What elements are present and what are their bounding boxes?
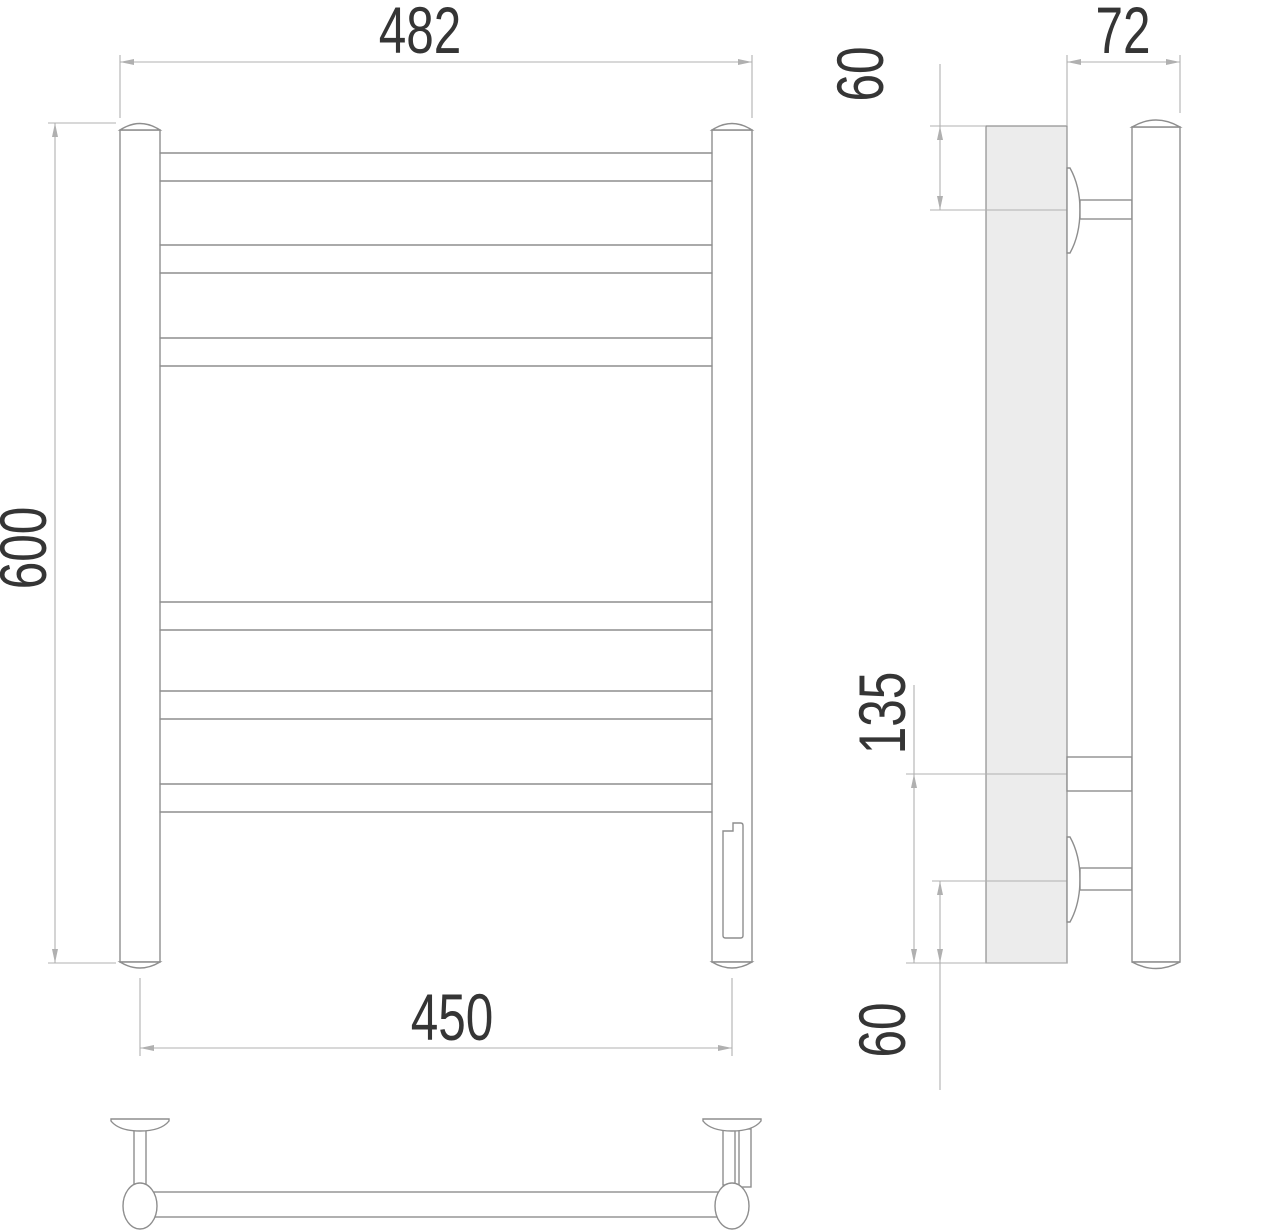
heating-element-block bbox=[1067, 757, 1132, 791]
dimension-overall-width: 482 bbox=[120, 0, 752, 118]
dim-72-arrow-right bbox=[1166, 59, 1180, 65]
dim-label-top-bracket-offset: 60 bbox=[824, 46, 898, 101]
top-bracket-wall-plate bbox=[1067, 168, 1080, 253]
bottom-view-rail-tube bbox=[150, 1192, 722, 1217]
front-right-post-top-cap bbox=[712, 124, 752, 131]
bottom-view-right-stem-2 bbox=[739, 1129, 751, 1187]
front-view: 482 600 450 bbox=[0, 0, 752, 1056]
front-left-post-top-cap bbox=[120, 124, 160, 131]
dimension-overall-depth: 72 bbox=[1067, 0, 1180, 126]
dim-600-arrow-bottom bbox=[52, 949, 58, 963]
bottom-view bbox=[111, 1119, 761, 1229]
dimension-lower-element-offset: 135 bbox=[846, 672, 920, 963]
bottom-view-right-post-section bbox=[715, 1183, 749, 1229]
side-view: 72 60 135 60 bbox=[824, 0, 1180, 1090]
front-right-post bbox=[712, 124, 752, 969]
bottom-view-left-stem bbox=[134, 1129, 146, 1185]
dimension-mount-spacing: 450 bbox=[140, 978, 732, 1056]
rung-1 bbox=[160, 153, 712, 181]
dim-label-overall-depth: 72 bbox=[1095, 0, 1150, 68]
technical-drawing-page: 482 600 450 bbox=[0, 0, 1280, 1230]
front-right-post-body bbox=[712, 130, 752, 962]
dim-60top-arrow-down bbox=[937, 196, 943, 210]
dim-label-bottom-bracket-offset: 60 bbox=[846, 1002, 920, 1057]
dim-72-arrow-left bbox=[1067, 59, 1081, 65]
dim-450-arrow-left bbox=[140, 1045, 154, 1051]
dim-60top-arrow-up bbox=[937, 126, 943, 140]
dim-482-arrow-right bbox=[738, 59, 752, 65]
dim-482-arrow-left bbox=[120, 59, 134, 65]
rung-5 bbox=[160, 691, 712, 719]
rung-2 bbox=[160, 245, 712, 273]
dim-label-overall-height: 600 bbox=[0, 507, 61, 590]
dim-135-arrow-down bbox=[911, 949, 917, 963]
dim-label-overall-width: 482 bbox=[379, 0, 462, 68]
dim-600-arrow-top bbox=[52, 123, 58, 137]
towel-rail-technical-drawing: 482 600 450 bbox=[0, 0, 1280, 1230]
front-left-post-bottom-cap bbox=[120, 962, 160, 968]
dim-135-arrow-up bbox=[911, 774, 917, 788]
side-post-body bbox=[1132, 127, 1180, 962]
front-right-post-bottom-cap bbox=[712, 962, 752, 968]
bottom-view-right-wall-plate bbox=[703, 1119, 761, 1131]
dim-60bottom-arrow-up bbox=[937, 881, 943, 895]
bottom-bracket-wall-plate bbox=[1067, 837, 1080, 922]
dim-label-mount-spacing: 450 bbox=[411, 981, 494, 1055]
bottom-view-left-wall-plate bbox=[111, 1119, 169, 1131]
dim-60bottom-arrow-down bbox=[937, 949, 943, 963]
front-rungs bbox=[160, 153, 712, 812]
bottom-view-left-post-section bbox=[123, 1183, 157, 1229]
dimension-bottom-bracket-offset: 60 bbox=[846, 881, 943, 1090]
bottom-view-right-stem-1 bbox=[723, 1129, 735, 1185]
bottom-wall-bracket bbox=[1067, 837, 1132, 922]
rung-4 bbox=[160, 602, 712, 630]
rung-3 bbox=[160, 338, 712, 366]
dimension-overall-height: 600 bbox=[0, 123, 116, 963]
side-post-bottom-cap bbox=[1132, 962, 1180, 969]
side-post-top-cap bbox=[1132, 120, 1180, 127]
wall-section bbox=[986, 126, 1067, 963]
top-wall-bracket bbox=[1067, 168, 1132, 253]
dimension-top-bracket-offset: 60 bbox=[824, 46, 943, 210]
dim-450-arrow-right bbox=[718, 1045, 732, 1051]
rung-6 bbox=[160, 784, 712, 812]
top-bracket-arm bbox=[1080, 200, 1132, 219]
bottom-bracket-arm bbox=[1080, 868, 1132, 890]
side-post bbox=[1132, 120, 1180, 969]
front-left-post bbox=[120, 124, 160, 969]
front-left-post-body bbox=[120, 130, 160, 962]
dim-label-lower-element-offset: 135 bbox=[846, 672, 920, 755]
